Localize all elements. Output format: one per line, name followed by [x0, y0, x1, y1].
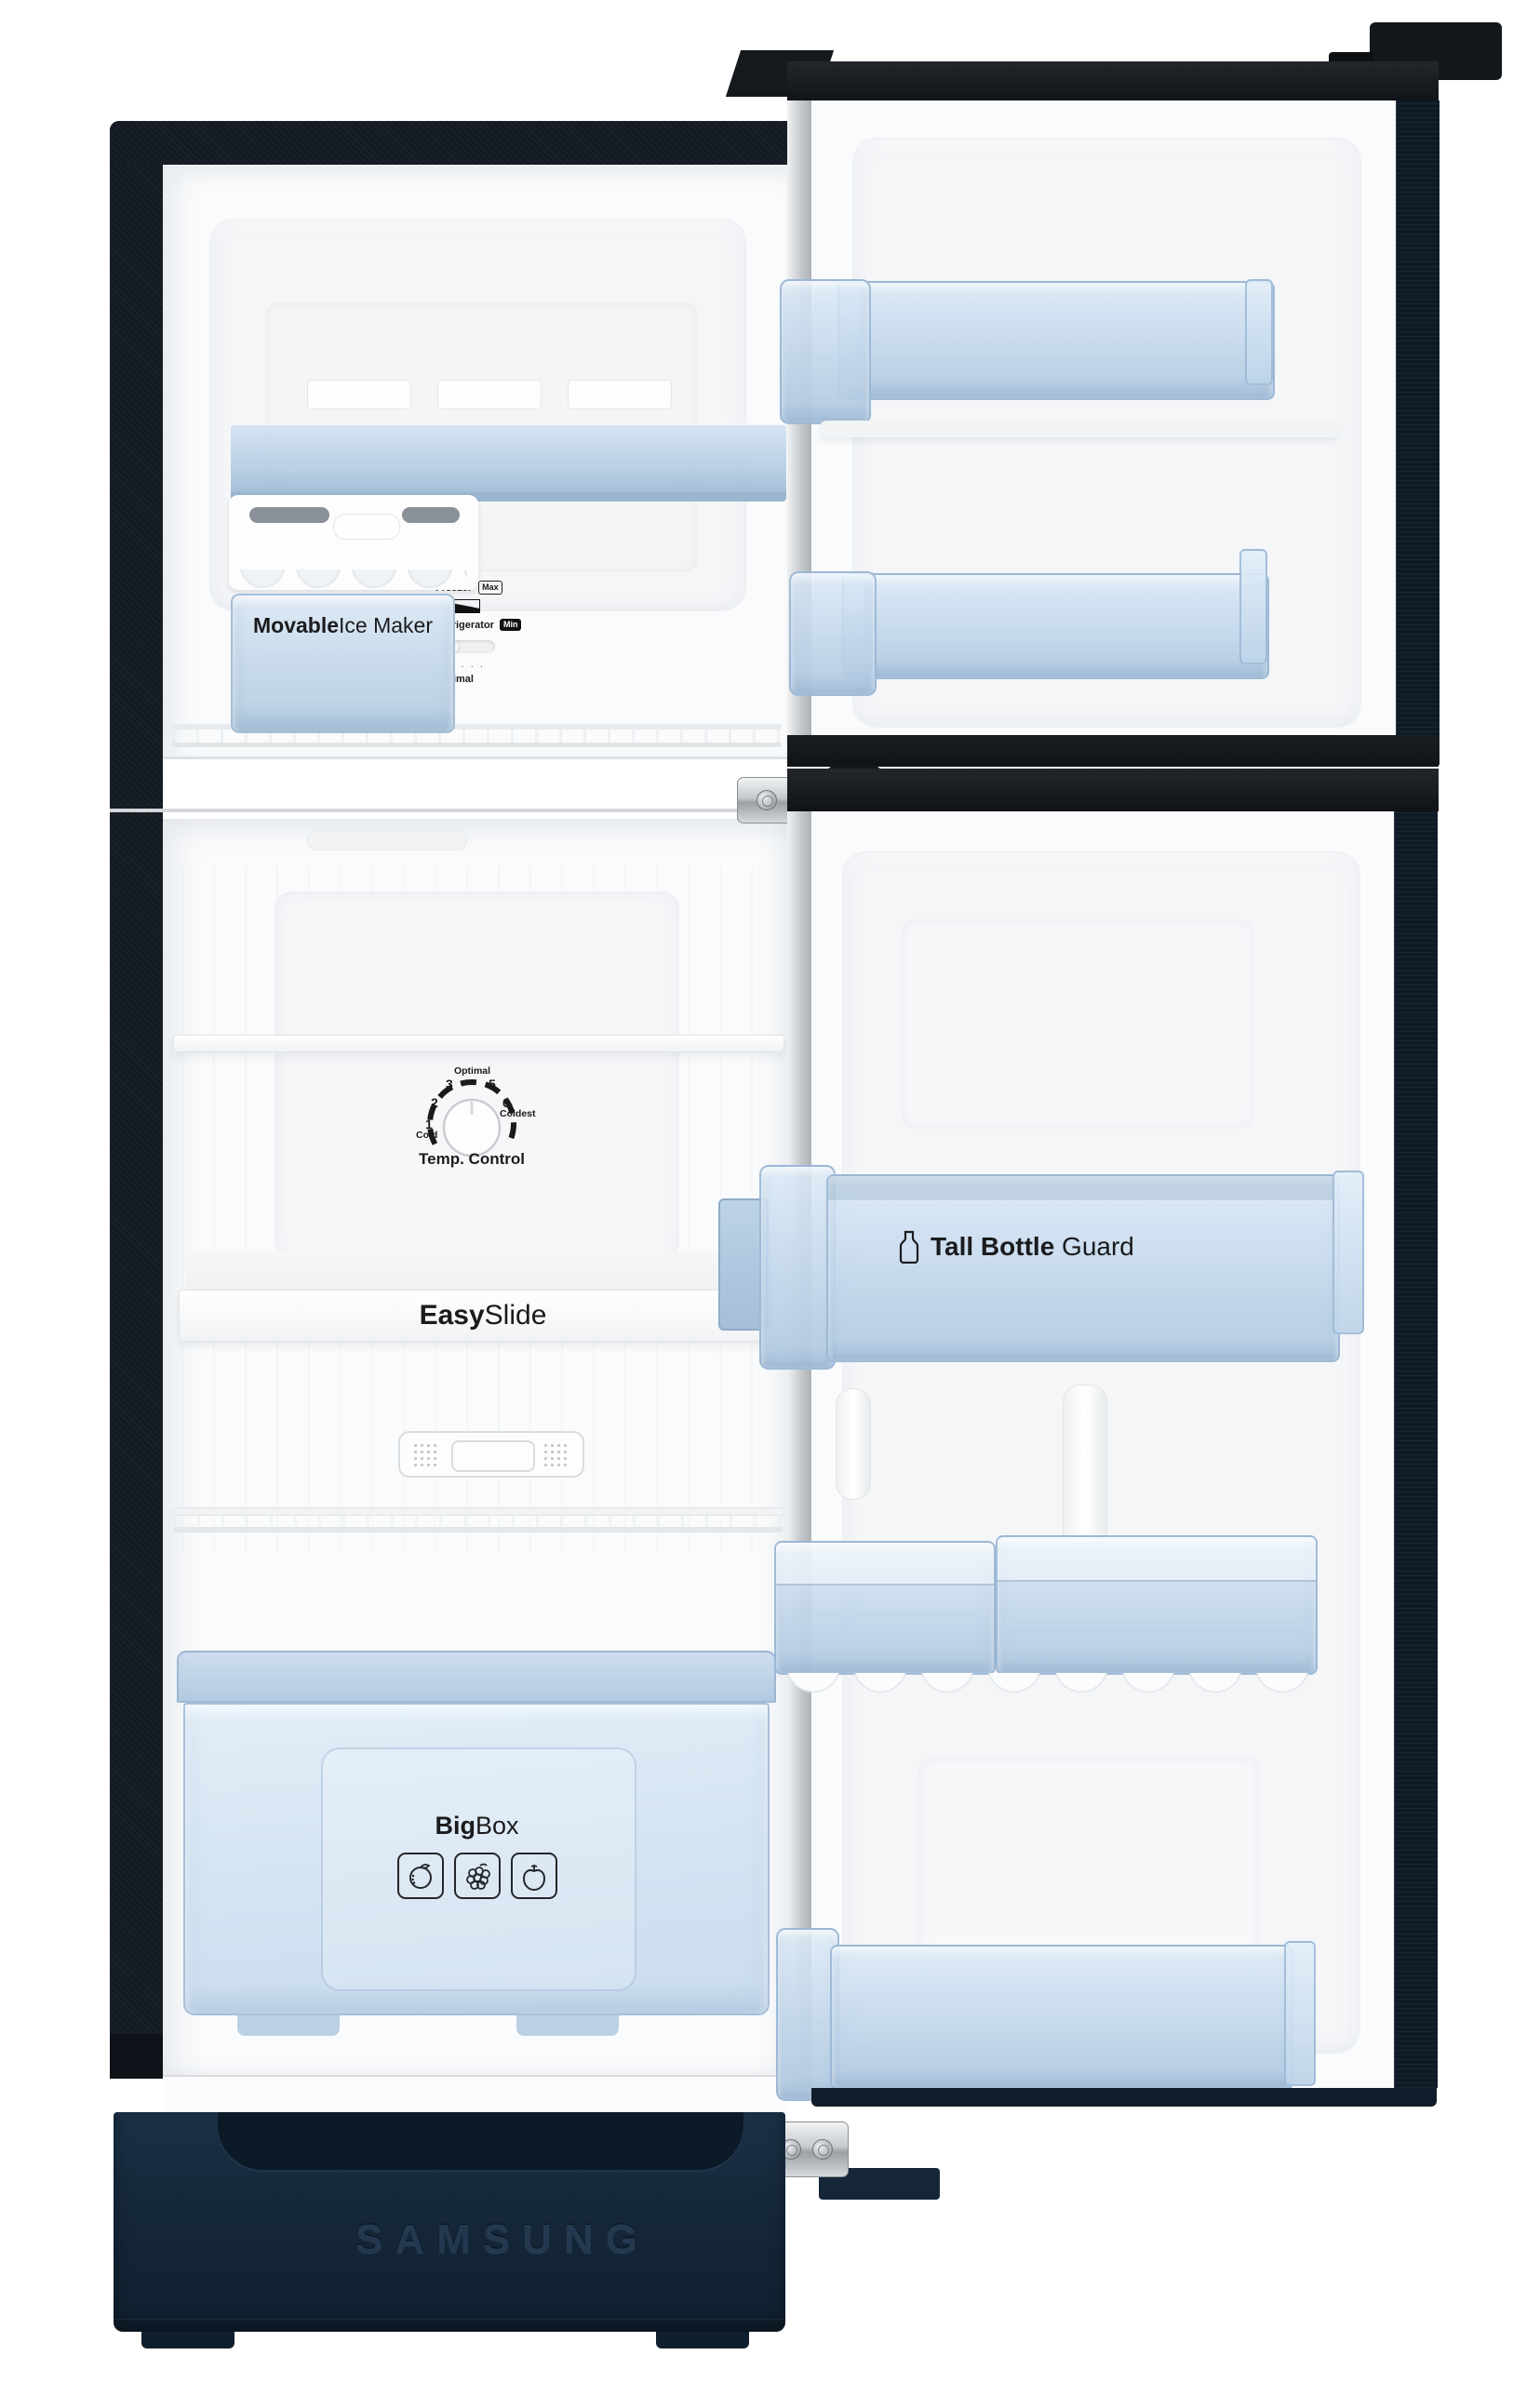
big-box-icons — [321, 1850, 633, 1902]
freezer-door-bin-ledge — [819, 421, 1340, 437]
dial-tick-1-label: Cold — [416, 1130, 437, 1141]
dial-tick-6-label: Coldest — [500, 1108, 536, 1119]
cabinet-frame-left — [110, 121, 163, 2077]
freezer-ice-tray-shelf[interactable] — [231, 423, 786, 502]
cabinet-bottom-front — [163, 2075, 789, 2116]
fridge-door-upper-recess — [901, 919, 1254, 1129]
scale-dots: ···· — [451, 662, 489, 672]
freezer-door-bin-lower-tab — [1239, 549, 1267, 664]
dial-optimal-label: Optimal — [447, 1065, 498, 1077]
ice-maker-twist-handle[interactable] — [333, 514, 400, 540]
temp-control-label: Temp. Control — [407, 1150, 537, 1169]
max-badge: Max — [478, 581, 502, 595]
samsung-logo: SAMSUNG — [344, 2216, 661, 2263]
easy-slide-shelf-surface — [186, 1251, 780, 1290]
refrigerator-photo: Freezer Max Refrigerator Min ▲ ···· Opti… — [0, 0, 1540, 2382]
freezer-door-exterior-edge — [1396, 100, 1440, 765]
min-badge: Min — [500, 619, 522, 631]
tall-bottle-guard-tab — [1332, 1171, 1364, 1334]
big-box-label: Big Box — [321, 1807, 633, 1844]
freezer-door-bin-lower[interactable] — [842, 573, 1269, 679]
bottom-door-bin-tab — [1284, 1941, 1316, 2086]
door-molded-rib — [1063, 1385, 1107, 1559]
fridge-door-lower-recess — [917, 1757, 1260, 1974]
egg-holder-bumps — [780, 1673, 1312, 1714]
cabinet-frame-top — [110, 121, 789, 165]
freezer-door-bin-upper-endcap — [780, 279, 871, 424]
bottle-icon — [897, 1230, 921, 1264]
apple-icon — [511, 1853, 557, 1899]
bottom-door-bin[interactable] — [830, 1945, 1293, 2090]
fridge-door[interactable] — [787, 811, 1439, 2088]
fridge-door-edge-trim — [787, 811, 811, 2088]
tall-bottle-guard-endcap — [759, 1165, 836, 1370]
freezer-door-bin-lower-endcap — [789, 571, 877, 696]
orange-icon — [397, 1853, 444, 1899]
fridge-door-bottom-edge — [811, 2088, 1437, 2107]
cabinet-frame-foot — [110, 2034, 163, 2079]
door-molded-rib — [836, 1388, 871, 1500]
freezer-wire-shelf — [172, 743, 782, 747]
fridge-top-shelf[interactable] — [173, 1035, 784, 1052]
plinth-groove — [218, 2112, 743, 2170]
freezer-door-bottom-edge — [787, 735, 1439, 767]
ice-maker-label: Movable Ice Maker — [233, 595, 453, 655]
compartment-divider-line — [110, 809, 789, 812]
big-box-drawer[interactable]: Big Box — [183, 1703, 770, 2015]
freezer-door-bin-upper[interactable] — [837, 281, 1275, 400]
freezer-vent-slot — [568, 380, 672, 409]
plinth-foot — [656, 2332, 749, 2349]
grapes-icon — [454, 1853, 501, 1899]
shelf-cover-handle[interactable] — [398, 1431, 584, 1478]
freezer-door-bin-upper-tab — [1245, 279, 1273, 385]
tall-bottle-guard-label: Tall Bottle Guard — [897, 1230, 1134, 1264]
compartment-divider-line — [163, 756, 789, 759]
freezer-vent-slot — [437, 380, 542, 409]
big-box-top-rail — [177, 1651, 776, 1703]
fridge-door-exterior-edge — [1394, 811, 1438, 2088]
freezer-door-top-edge — [787, 61, 1439, 102]
fridge-door-top-edge — [787, 769, 1439, 811]
plinth-foot — [141, 2332, 234, 2349]
freezer-vent-slot — [307, 380, 411, 409]
movable-ice-maker-bin[interactable]: Movable Ice Maker — [231, 594, 455, 733]
big-box-foot — [516, 2015, 619, 2036]
screw-icon — [757, 790, 777, 810]
door-tray-left[interactable] — [774, 1541, 996, 1675]
fridge-compartment: 1 Cold 2 3 Optimal 5 6 Coldest Temp. Con… — [163, 819, 789, 2075]
dial-tick-3: 3 — [446, 1077, 453, 1091]
dial-tick-2: 2 — [431, 1095, 438, 1110]
tall-bottle-guard-bin[interactable]: Tall Bottle Guard — [826, 1174, 1340, 1362]
screw-icon — [812, 2139, 833, 2160]
dial-tick-5: 5 — [489, 1077, 496, 1091]
easy-slide-shelf[interactable]: Easy Slide — [179, 1290, 787, 1342]
base-plinth: SAMSUNG — [114, 2112, 785, 2332]
door-tray-right[interactable] — [996, 1535, 1318, 1675]
big-box-foot — [237, 2015, 340, 2036]
interior-lamp — [307, 830, 467, 850]
